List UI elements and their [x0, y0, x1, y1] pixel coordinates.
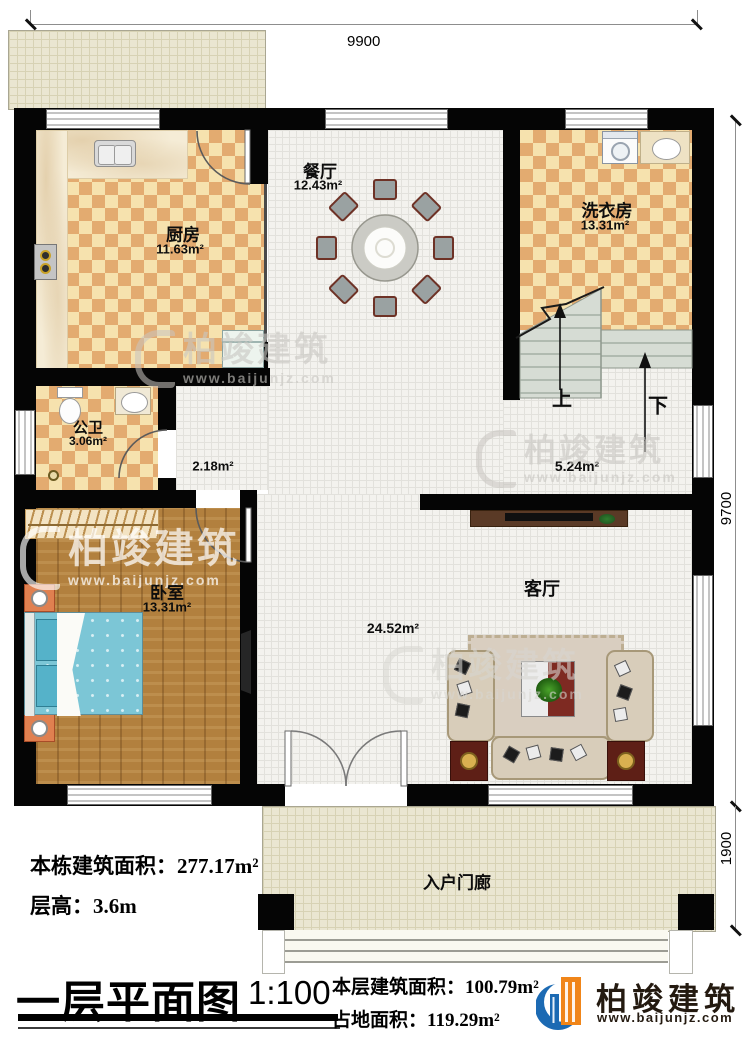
title-rule-thin: [18, 1027, 340, 1029]
company-website: www.baijunjz.com: [597, 1010, 733, 1025]
area-stair-hall: 5.24m²: [555, 458, 599, 474]
kitchen-door-leaf: [245, 130, 250, 183]
room-area-living: 24.52m²: [367, 620, 419, 636]
stair-label-down: 下: [648, 390, 668, 419]
bathroom-door-arc: [119, 430, 167, 478]
room-area-bedroom: 13.31m²: [143, 600, 191, 615]
room-area-dining: 12.43m²: [294, 178, 342, 193]
entry-door-leaf-right: [401, 731, 407, 786]
room-area-laundry: 13.31m²: [581, 218, 629, 233]
annotation-total-area: 本栋建筑面积：277.17m²: [30, 850, 259, 880]
dim-line-top: [30, 24, 697, 25]
company-logo-icon: [536, 972, 590, 1034]
entry-door-leaf-left: [285, 731, 291, 786]
dining-table-set: [317, 180, 453, 316]
annotation-footprint-area: 占地面积：119.29m²: [332, 1005, 500, 1032]
stair-label-up: 上: [552, 383, 572, 412]
title-rule-thick: [18, 1014, 338, 1021]
entry-door-arc-right: [346, 731, 401, 786]
dim-width-label: 9900: [347, 33, 380, 50]
entry-door-arc-left: [291, 731, 346, 786]
kitchen-door-arc: [197, 131, 250, 184]
dim-line-porch: [735, 806, 736, 930]
dim-height-label: 9700: [718, 492, 735, 525]
annotation-floor-area: 本层建筑面积：100.79m²: [332, 972, 539, 999]
plan-scale: 1:100: [248, 974, 331, 1012]
dim-porch-label: 1900: [718, 832, 735, 865]
room-label-porch: 入户门廊: [423, 869, 491, 894]
room-area-kitchen: 11.63m²: [156, 242, 204, 257]
dim-line-right: [735, 120, 736, 806]
bedroom-door-leaf: [246, 508, 251, 562]
area-hallway: 2.18m²: [192, 459, 233, 474]
floor-plan-canvas: 9900 9700 1900 厨房 11.63m² 餐厅 12.43m² 洗衣房…: [0, 0, 750, 1041]
bedroom-door-arc: [196, 508, 250, 562]
room-area-bathroom: 3.06m²: [69, 434, 107, 448]
plan-linework: [0, 0, 750, 1041]
annotation-floor-height: 层高：3.6m: [30, 890, 137, 920]
room-label-living: 客厅: [524, 575, 560, 601]
